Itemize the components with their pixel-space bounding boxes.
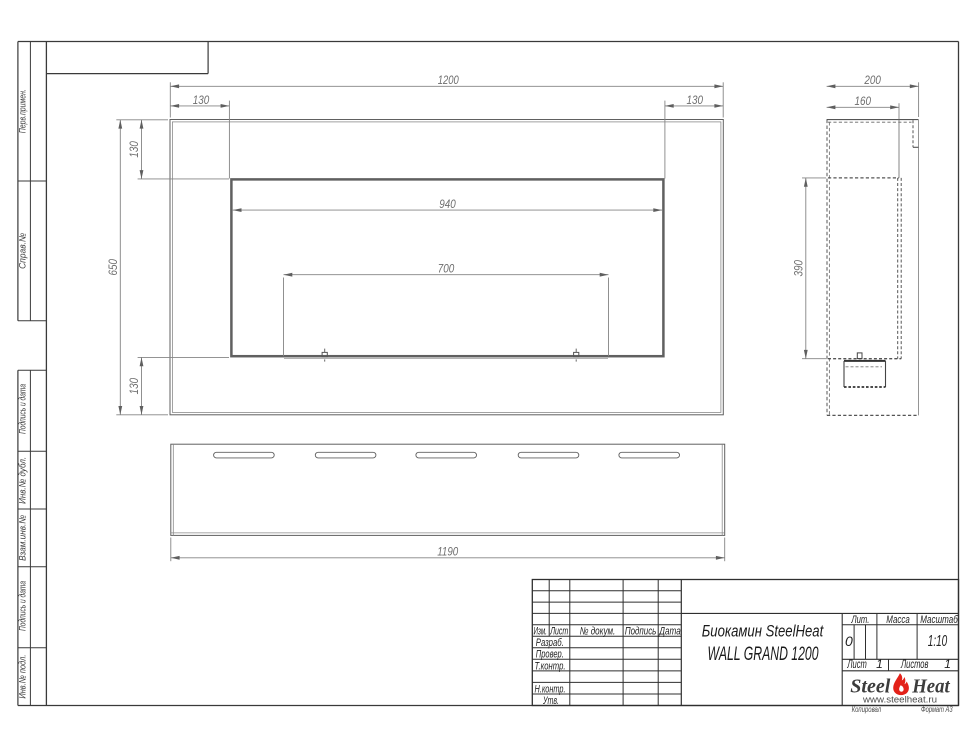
svg-text:Инв.№ подл.: Инв.№ подл. [17, 655, 27, 699]
svg-text:WALL GRAND 1200: WALL GRAND 1200 [708, 644, 819, 665]
svg-text:Масштаб: Масштаб [920, 614, 958, 626]
svg-text:1: 1 [876, 657, 883, 671]
svg-text:130: 130 [687, 93, 704, 107]
svg-text:390: 390 [792, 260, 806, 277]
svg-text:Биокамин SteelHeat: Биокамин SteelHeat [702, 622, 824, 641]
svg-text:№ докум.: № докум. [580, 626, 616, 638]
svg-text:Копировал: Копировал [852, 705, 882, 714]
svg-text:940: 940 [439, 197, 456, 211]
svg-text:130: 130 [193, 93, 210, 107]
svg-text:650: 650 [106, 259, 120, 276]
svg-text:Изм.: Изм. [533, 626, 547, 638]
svg-text:Лист: Лист [550, 626, 569, 638]
svg-text:Дата: Дата [658, 626, 680, 638]
svg-text:200: 200 [864, 73, 881, 87]
svg-text:1:10: 1:10 [928, 633, 948, 650]
svg-text:Т.контр.: Т.контр. [535, 660, 566, 672]
svg-text:Лит.: Лит. [851, 614, 870, 626]
svg-text:700: 700 [438, 262, 455, 276]
svg-text:130: 130 [127, 141, 141, 158]
svg-text:Листов: Листов [900, 657, 928, 671]
svg-text:Справ.№: Справ.№ [17, 233, 27, 269]
svg-text:Лист: Лист [847, 657, 867, 671]
svg-text:0: 0 [845, 633, 853, 649]
svg-text:www.steelheat.ru: www.steelheat.ru [862, 695, 937, 706]
svg-text:Подпись: Подпись [625, 626, 657, 638]
svg-text:160: 160 [855, 94, 872, 108]
svg-text:Разраб.: Разраб. [536, 637, 564, 649]
svg-text:1190: 1190 [437, 545, 458, 559]
svg-text:Инв.№ дубл.: Инв.№ дубл. [17, 457, 27, 504]
svg-text:Формат А3: Формат А3 [921, 705, 953, 714]
svg-text:1: 1 [944, 657, 951, 671]
svg-text:Подпись и дата: Подпись и дата [17, 581, 27, 631]
svg-text:Утв.: Утв. [542, 695, 559, 707]
svg-text:Масса: Масса [886, 614, 910, 626]
svg-text:1200: 1200 [438, 73, 459, 87]
svg-text:130: 130 [127, 378, 141, 395]
svg-text:Перв.примен.: Перв.примен. [17, 89, 27, 133]
svg-text:Н.контр.: Н.контр. [535, 683, 566, 695]
svg-text:Взам.инв.№: Взам.инв.№ [17, 515, 27, 561]
svg-text:Подпись и дата: Подпись и дата [17, 384, 27, 434]
svg-text:Провер.: Провер. [536, 649, 564, 661]
